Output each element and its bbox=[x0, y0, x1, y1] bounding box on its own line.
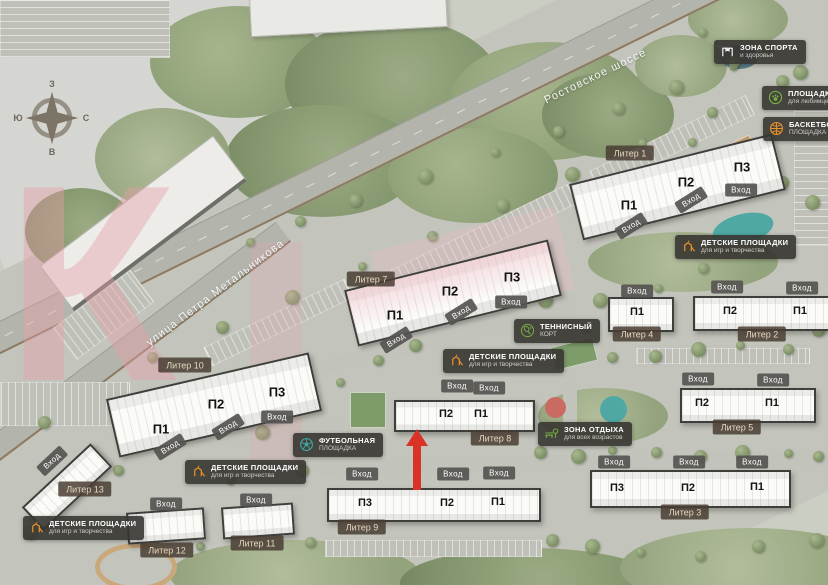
section-label: П3 bbox=[734, 160, 751, 175]
section-label: П2 bbox=[439, 408, 453, 420]
amenity-kids-playgrounds: ДЕТСКИЕ ПЛОЩАДКИдля игр и творчества bbox=[675, 235, 796, 259]
pullup-bars-icon bbox=[720, 44, 735, 59]
tree bbox=[553, 126, 564, 137]
tree bbox=[813, 451, 824, 462]
building-label: Литер 1 bbox=[606, 146, 654, 161]
tree bbox=[565, 167, 580, 182]
tree bbox=[608, 446, 617, 455]
building-label: Литер 4 bbox=[613, 327, 661, 342]
tree bbox=[496, 199, 509, 212]
tree bbox=[636, 548, 645, 557]
entrance-badge: Вход bbox=[346, 468, 378, 481]
tree bbox=[805, 195, 820, 210]
entrance-badge: Вход bbox=[736, 456, 768, 469]
building-liter-11 bbox=[221, 503, 295, 540]
tree bbox=[491, 148, 500, 157]
tree bbox=[783, 344, 794, 355]
tree bbox=[784, 449, 793, 458]
amenity-pet-playgrounds: ПЛОЩАДКИдля любимцев bbox=[762, 86, 828, 110]
entrance-badge: Вход bbox=[473, 382, 505, 395]
tennis-racket-icon bbox=[520, 323, 535, 338]
tree bbox=[698, 263, 709, 274]
entrance-badge: Вход bbox=[261, 411, 293, 424]
compass-rose: З С В Ю bbox=[22, 88, 82, 148]
section-label: П1 bbox=[750, 481, 764, 493]
building-label: Литер 7 bbox=[347, 272, 395, 287]
section-label: П1 bbox=[153, 422, 170, 437]
entrance-badge: Вход bbox=[673, 456, 705, 469]
entrance-badge: Вход bbox=[786, 282, 818, 295]
entrance-badge: Вход bbox=[598, 456, 630, 469]
section-label: П3 bbox=[358, 497, 372, 509]
tree bbox=[113, 465, 124, 476]
tree bbox=[612, 102, 625, 115]
basketball-icon bbox=[769, 121, 784, 136]
building-label: Литер 12 bbox=[140, 543, 193, 558]
entrance-badge: Вход bbox=[495, 296, 527, 309]
playground-icon bbox=[449, 353, 464, 368]
tree bbox=[651, 447, 662, 458]
building-label: Литер 3 bbox=[661, 505, 709, 520]
amenity-kids-playgrounds: ДЕТСКИЕ ПЛОЩАДКИдля игр и творчества bbox=[443, 349, 564, 373]
playground-icon bbox=[681, 239, 696, 254]
tree bbox=[585, 539, 600, 554]
amenity-basketball-court: БАСКЕТБОЛПЛОЩАДКА bbox=[763, 117, 828, 141]
tree bbox=[649, 350, 662, 363]
section-label: П2 bbox=[440, 497, 454, 509]
section-label: П2 bbox=[681, 482, 695, 494]
amenity-rest-zone: ЗОНА ОТДЫХАдля всех возрастов bbox=[538, 422, 632, 446]
tree bbox=[196, 542, 205, 551]
tree bbox=[691, 342, 706, 357]
site-plan-map: К П1 П2 П3 П1 П2 П3 П1 П2 П3 П2 П1 П3 П2… bbox=[0, 0, 828, 585]
tree bbox=[336, 378, 345, 387]
soccer-ball-icon bbox=[299, 437, 314, 452]
tree bbox=[698, 28, 707, 37]
tree bbox=[349, 194, 362, 207]
tree bbox=[418, 169, 433, 184]
building-label: Литер 2 bbox=[738, 327, 786, 342]
section-label: П1 bbox=[621, 198, 638, 213]
tree bbox=[358, 262, 367, 271]
tree bbox=[688, 138, 697, 147]
tree bbox=[607, 352, 618, 363]
section-label: П3 bbox=[269, 385, 286, 400]
building-label: Литер 5 bbox=[713, 420, 761, 435]
tree bbox=[295, 216, 306, 227]
amenity-football-field: ФУТБОЛЬНАЯПЛОЩАДКА bbox=[293, 433, 383, 457]
section-label: П1 bbox=[765, 397, 779, 409]
tree bbox=[793, 65, 808, 80]
section-label: П1 bbox=[474, 408, 488, 420]
section-label: П1 bbox=[793, 305, 807, 317]
entrance-badge: Вход bbox=[437, 468, 469, 481]
entrance-badge: Вход bbox=[483, 467, 515, 480]
red-arrow-shaft bbox=[413, 445, 421, 490]
tree bbox=[654, 284, 663, 293]
section-label: П2 bbox=[723, 305, 737, 317]
section-label: П3 bbox=[504, 270, 521, 285]
tree bbox=[571, 449, 586, 464]
entrance-badge: Вход bbox=[725, 184, 757, 197]
compass-star-icon bbox=[22, 88, 82, 148]
tree bbox=[752, 540, 765, 553]
building-label: Литер 11 bbox=[231, 536, 284, 551]
amenity-tennis-court: ТЕННИСНЫЙКОРТ bbox=[514, 319, 600, 343]
building-label: Литер 13 bbox=[58, 482, 111, 497]
section-label: П3 bbox=[610, 482, 624, 494]
playground-icon bbox=[191, 464, 206, 479]
tree bbox=[216, 321, 229, 334]
amenity-kids-playgrounds: ДЕТСКИЕ ПЛОЩАДКИдля игр и творчества bbox=[23, 516, 144, 540]
tree bbox=[534, 446, 547, 459]
entrance-badge: Вход bbox=[757, 374, 789, 387]
section-label: П2 bbox=[208, 397, 225, 412]
amenity-sport-zone: ЗОНА СПОРТАи здоровья bbox=[714, 40, 806, 64]
bench-tree-icon bbox=[544, 426, 559, 441]
tree bbox=[373, 355, 384, 366]
building-label: Литер 9 bbox=[338, 520, 386, 535]
entrance-badge: Вход bbox=[682, 373, 714, 386]
entrance-badge: Вход bbox=[621, 285, 653, 298]
tree bbox=[593, 293, 608, 308]
tree bbox=[669, 80, 684, 95]
building-label: Литер 10 bbox=[158, 358, 211, 373]
entrance-badge: Вход bbox=[150, 498, 182, 511]
entrance-badge: Вход bbox=[441, 380, 473, 393]
section-label: П2 bbox=[695, 397, 709, 409]
amenity-kids-playgrounds: ДЕТСКИЕ ПЛОЩАДКИдля игр и творчества bbox=[185, 460, 306, 484]
section-label: П1 bbox=[491, 496, 505, 508]
section-label: П2 bbox=[442, 284, 459, 299]
tree bbox=[546, 534, 559, 547]
section-label: П1 bbox=[630, 306, 644, 318]
section-label: П2 bbox=[678, 175, 695, 190]
tree bbox=[707, 107, 718, 118]
tree bbox=[409, 339, 422, 352]
dog-icon bbox=[768, 90, 783, 105]
tree bbox=[305, 537, 316, 548]
red-arrow-head bbox=[406, 429, 428, 446]
playground-icon bbox=[29, 520, 44, 535]
building-label: Литер 8 bbox=[471, 431, 519, 446]
tree bbox=[809, 533, 824, 548]
building-liter-8 bbox=[394, 400, 535, 432]
watermark-letter: К bbox=[5, 158, 176, 410]
tree bbox=[736, 341, 745, 350]
section-label: П1 bbox=[387, 308, 404, 323]
tree bbox=[695, 551, 706, 562]
entrance-badge: Вход bbox=[240, 494, 272, 507]
entrance-badge: Вход bbox=[711, 281, 743, 294]
